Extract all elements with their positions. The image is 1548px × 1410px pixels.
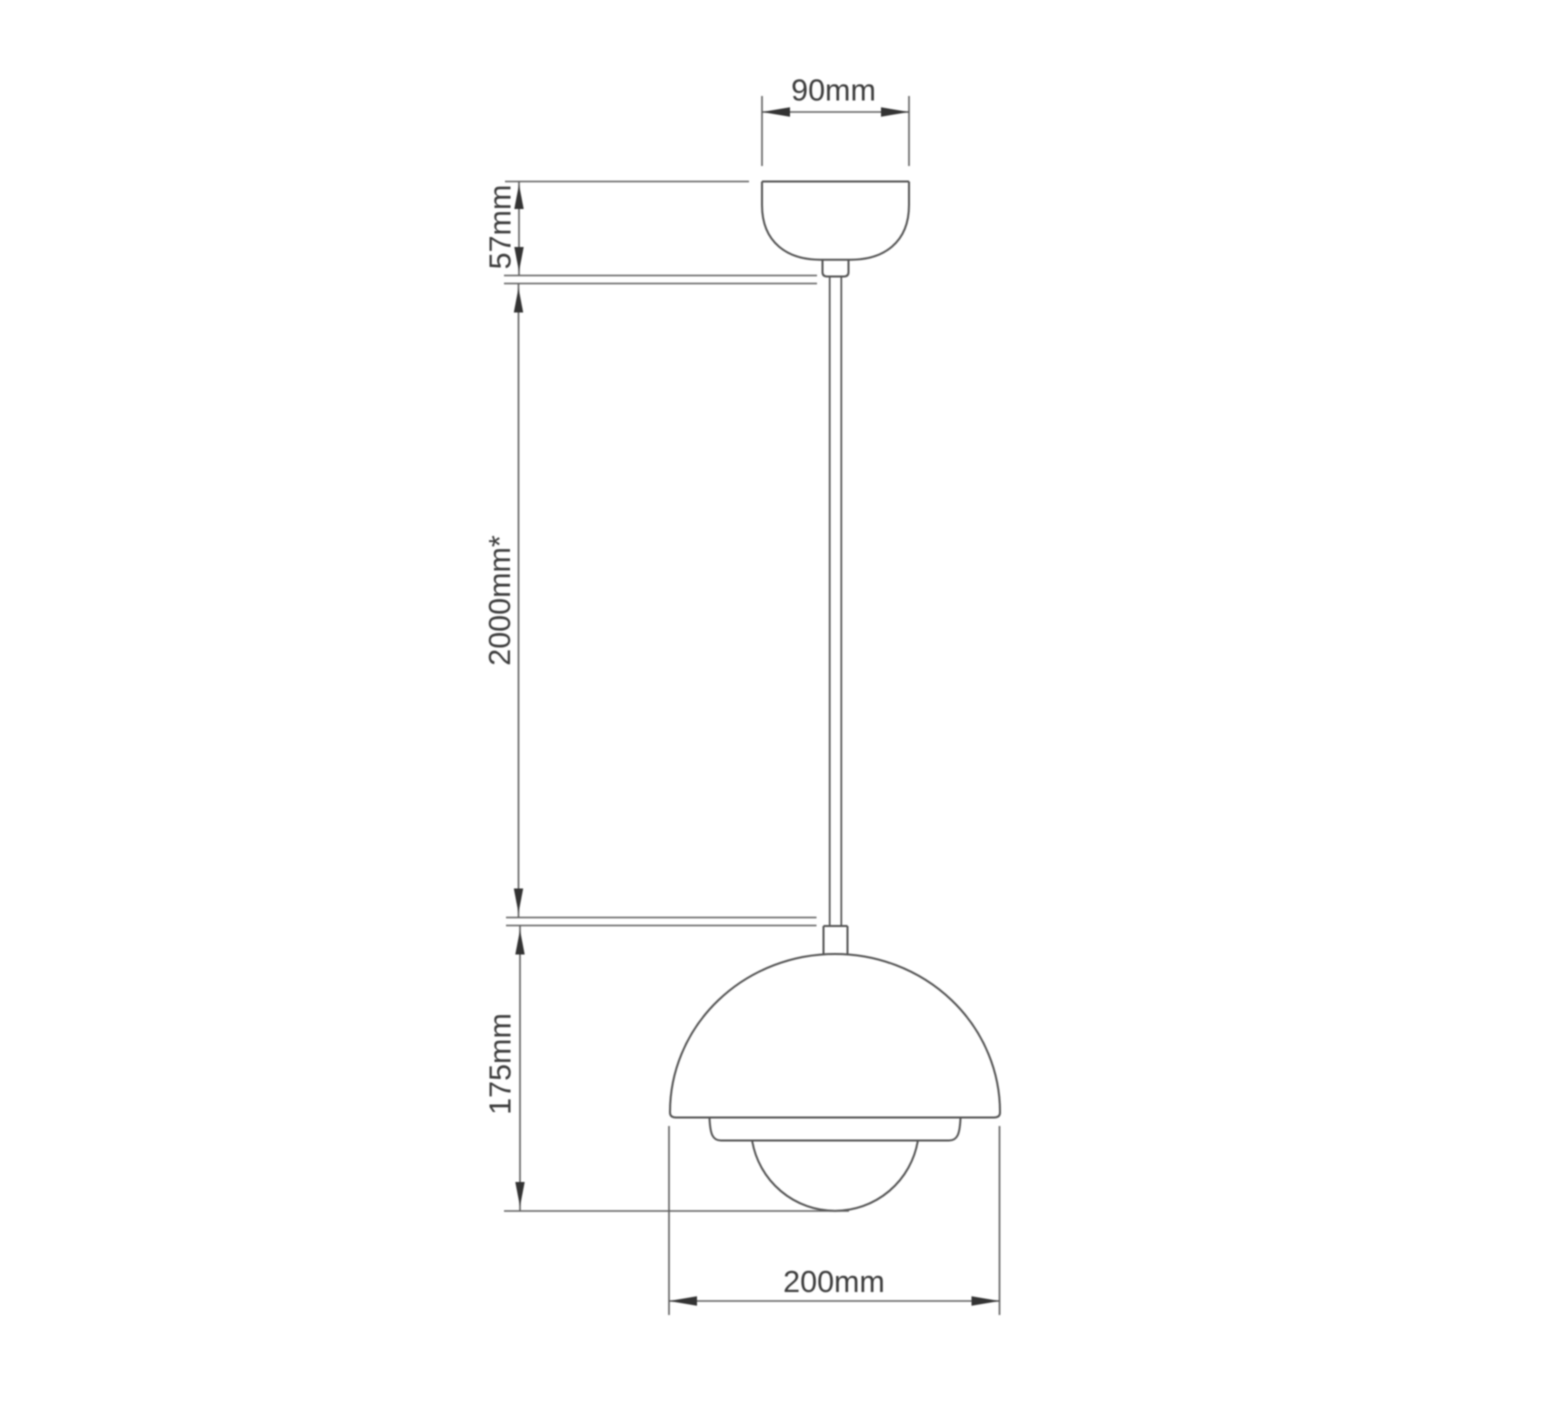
svg-text:200mm: 200mm xyxy=(783,1265,885,1299)
svg-text:2000mm*: 2000mm* xyxy=(483,535,517,666)
svg-text:90mm: 90mm xyxy=(791,74,876,108)
svg-text:175mm: 175mm xyxy=(484,1013,518,1115)
svg-text:57mm: 57mm xyxy=(484,185,518,270)
